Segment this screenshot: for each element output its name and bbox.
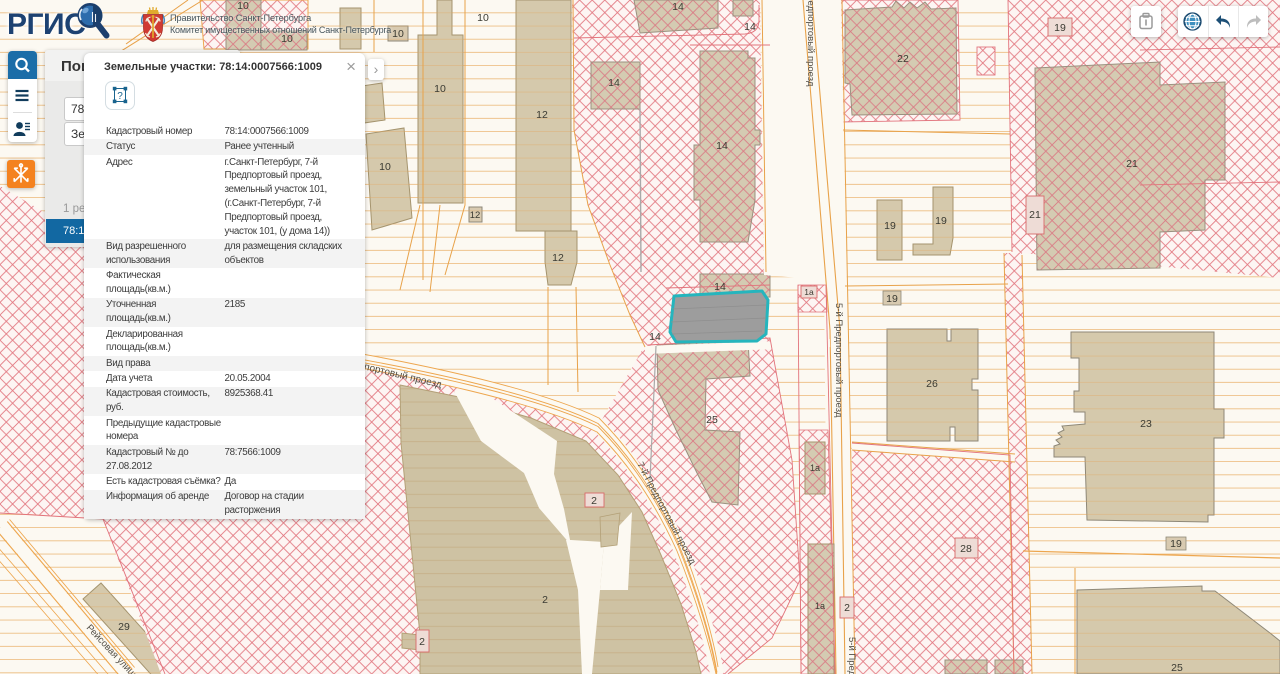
svg-text:2: 2 <box>542 594 548 606</box>
svg-text:21: 21 <box>1126 158 1138 170</box>
svg-text:1а: 1а <box>804 287 814 297</box>
svg-text:2: 2 <box>591 495 597 507</box>
svg-text:25: 25 <box>706 414 718 426</box>
svg-text:10: 10 <box>237 0 249 12</box>
svg-text:10: 10 <box>477 12 489 24</box>
svg-text:19: 19 <box>884 220 896 232</box>
svg-text:14: 14 <box>744 21 756 33</box>
svg-text:19: 19 <box>1054 22 1066 34</box>
svg-text:14: 14 <box>608 77 620 89</box>
svg-text:14: 14 <box>714 281 726 293</box>
svg-text:2: 2 <box>419 636 425 648</box>
svg-text:12: 12 <box>470 210 481 221</box>
svg-text:21: 21 <box>1029 209 1041 221</box>
svg-text:25: 25 <box>1171 662 1183 674</box>
svg-text:12: 12 <box>536 109 548 121</box>
svg-text:19: 19 <box>886 293 898 305</box>
svg-text:10: 10 <box>379 161 391 173</box>
svg-text:22: 22 <box>897 53 909 65</box>
svg-text:10: 10 <box>281 33 293 45</box>
svg-text:5-й Предпортовый проезд: 5-й Предпортовый проезд <box>805 0 816 87</box>
svg-text:5-й Предпортовый проезд: 5-й Предпортовый проезд <box>846 637 857 674</box>
svg-text:1а: 1а <box>815 601 825 611</box>
svg-text:10: 10 <box>434 83 446 95</box>
svg-text:?: ? <box>117 91 123 102</box>
svg-text:19: 19 <box>1170 538 1182 550</box>
svg-text:28: 28 <box>960 543 972 555</box>
svg-text:14: 14 <box>716 140 728 152</box>
svg-text:23: 23 <box>1140 418 1152 430</box>
svg-text:1а: 1а <box>810 463 820 473</box>
svg-text:19: 19 <box>935 215 947 227</box>
svg-text:10: 10 <box>392 28 404 40</box>
svg-text:14: 14 <box>649 331 661 343</box>
svg-text:2: 2 <box>844 602 850 614</box>
svg-text:12: 12 <box>552 252 564 264</box>
svg-text:29: 29 <box>118 621 130 633</box>
svg-text:14: 14 <box>672 1 684 13</box>
svg-text:26: 26 <box>926 378 938 390</box>
svg-text:5-й Предпортовый проезд: 5-й Предпортовый проезд <box>833 303 844 418</box>
